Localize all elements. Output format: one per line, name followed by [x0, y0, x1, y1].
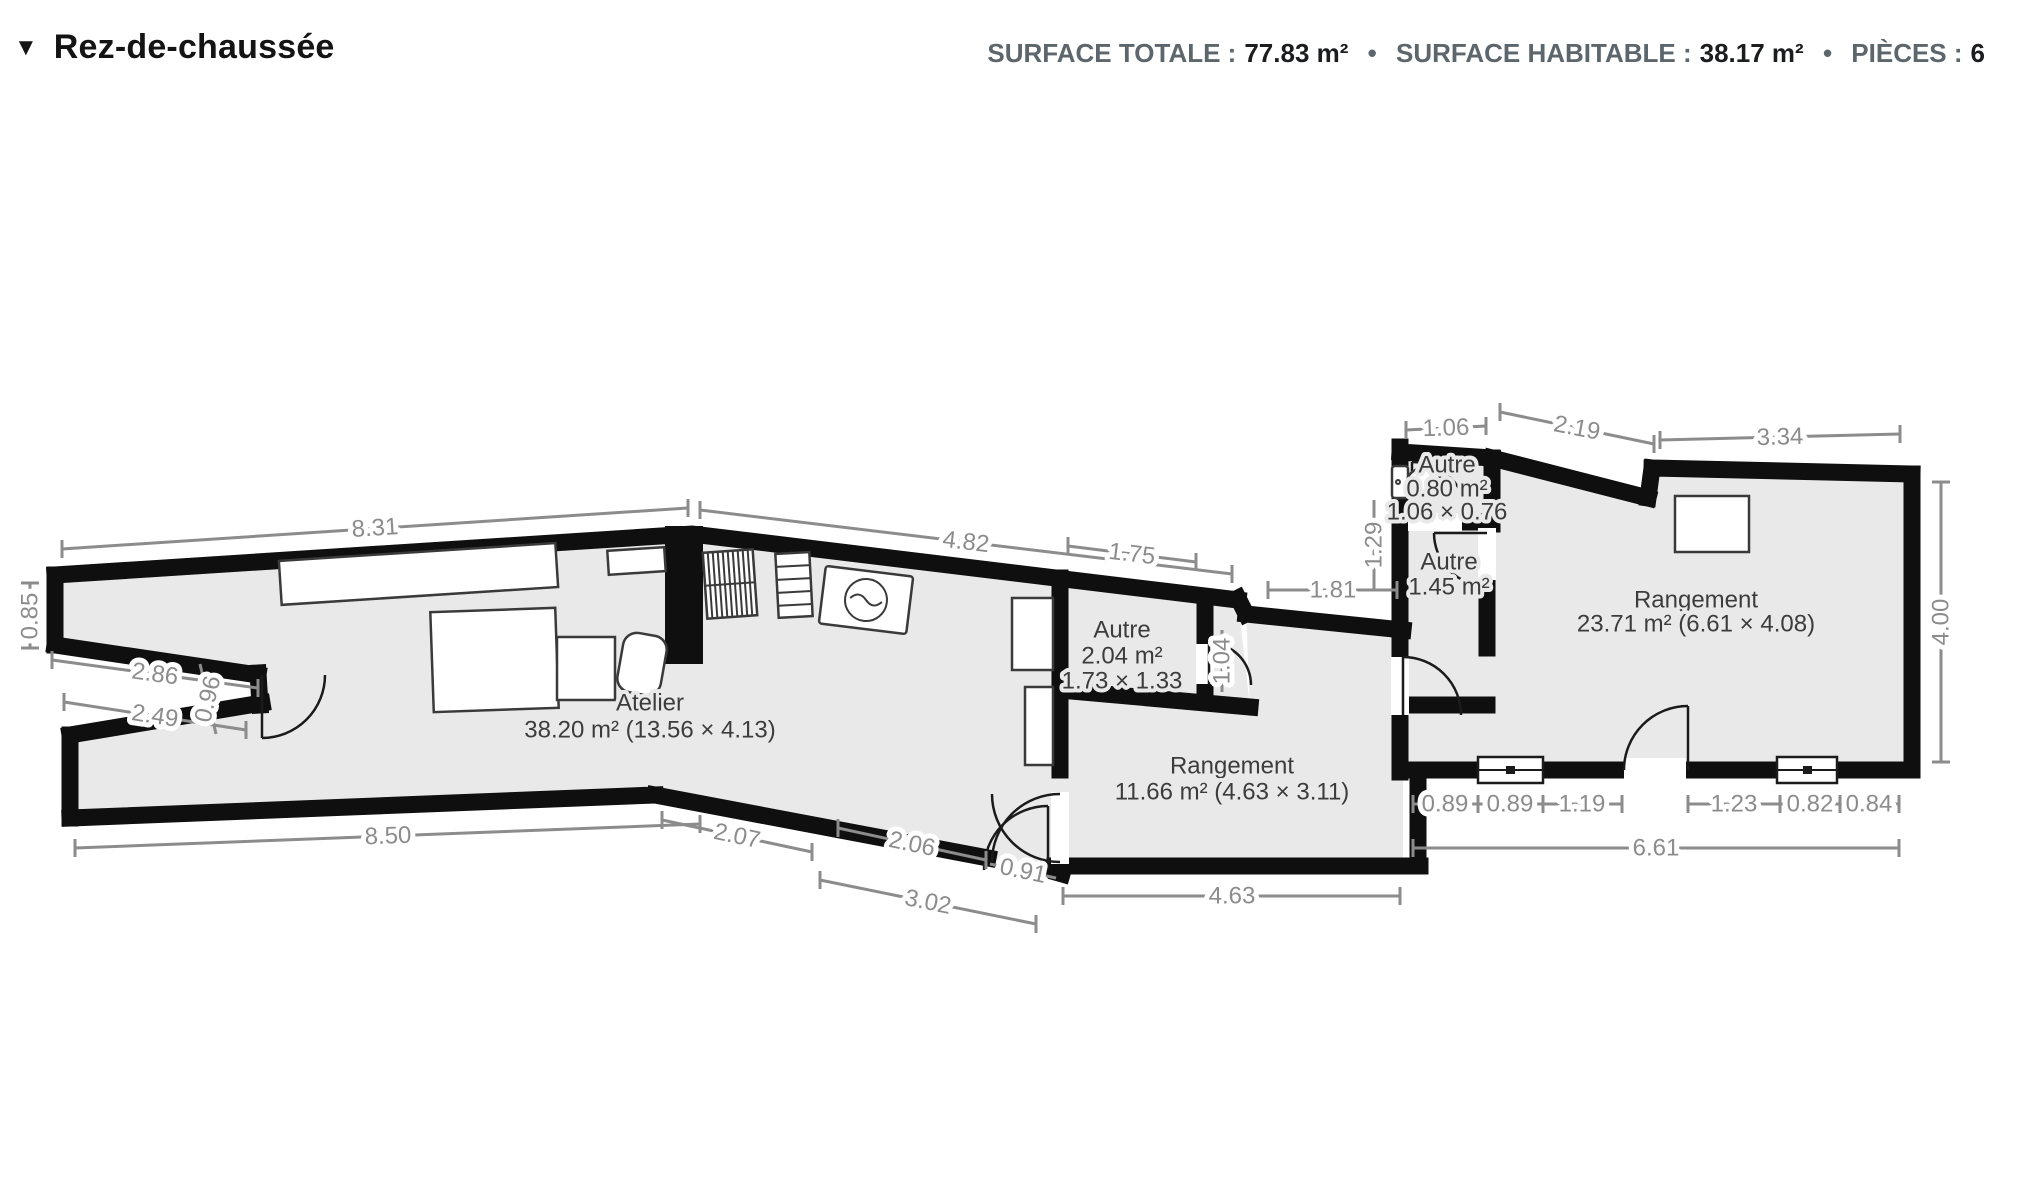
- window: [1777, 757, 1837, 783]
- dim-passage-top: 1.81: [1310, 577, 1357, 604]
- cabinet: [1025, 687, 1053, 765]
- dim-middle-top: 4.82: [941, 526, 991, 558]
- dim-bottom-right-total: 6.61: [1633, 835, 1680, 862]
- washing-machine-icon: [819, 566, 913, 634]
- stairs-icon: [775, 552, 812, 618]
- dim-br-5: 0.82: [1787, 791, 1834, 818]
- dim-br-1: 0.89: [1422, 791, 1469, 818]
- room-label-autre204: Autre: [1093, 617, 1150, 644]
- dim-wc-left: 1.29: [1361, 522, 1388, 569]
- dim-notch-upper: 2.86: [130, 657, 180, 690]
- room-label-autre204-dims: 1.73 × 1.33: [1062, 668, 1183, 695]
- dim-bottom-diag: 3.02: [902, 884, 953, 920]
- cabinet: [1012, 598, 1053, 670]
- dim-bottom-right-row: 0.89 0.89 1.19 1.23 0.82 0.84: [1413, 791, 1899, 818]
- window: [1478, 757, 1543, 783]
- dim-top-right: 3.34: [1756, 423, 1803, 451]
- room-label-autre204-area: 2.04 m²: [1081, 643, 1162, 670]
- chair: [615, 631, 669, 698]
- side-table: [557, 637, 615, 700]
- table: [430, 608, 558, 712]
- dim-br-3: 1.19: [1559, 791, 1606, 818]
- room-label-rangement-right-area: 23.71 m² (6.61 × 4.08): [1577, 611, 1815, 638]
- dim-top-diag: 2.19: [1551, 410, 1602, 445]
- room-label-rangement-right: Rangement: [1634, 587, 1758, 614]
- room-label-autre-wc: Autre: [1418, 452, 1475, 479]
- dim-br-2: 0.89: [1487, 791, 1534, 818]
- dim-left-upper: 0.85: [17, 593, 44, 640]
- storage-box: [1675, 496, 1749, 552]
- dim-atelier-bottom: 8.50: [364, 822, 412, 851]
- ladder-icon: [703, 549, 757, 618]
- dim-autre-door: 1.04: [1209, 638, 1236, 685]
- dim-wc-top: 1.06: [1422, 414, 1470, 443]
- room-label-rangement-mid-area: 11.66 m² (4.63 × 3.11): [1115, 779, 1350, 806]
- room-label-atelier: Atelier: [616, 690, 684, 717]
- dim-atelier-top: 8.31: [351, 513, 399, 543]
- room-label-autre-wc-dims: 1.06 × 0.76: [1387, 499, 1508, 526]
- dim-autre-top: 1.75: [1107, 538, 1157, 570]
- room-label-autre145-area: 1.45 m²: [1408, 574, 1489, 601]
- room-label-atelier-area: 38.20 m² (13.56 × 4.13): [524, 717, 775, 744]
- dim-right-side: 4.00: [1928, 599, 1955, 646]
- floorplan: 8.31 4.82 0.85 2.86 2.49 0.96 8.50 2.07 …: [0, 0, 2032, 1200]
- dim-br-6: 0.84: [1846, 791, 1893, 818]
- room-label-autre145: Autre: [1420, 549, 1477, 576]
- dim-br-4: 1.23: [1711, 791, 1758, 818]
- shelf: [607, 547, 665, 575]
- room-label-rangement-mid: Rangement: [1170, 753, 1294, 780]
- dim-bottom-step1: 2.07: [711, 818, 762, 854]
- dim-rangement-mid-bottom: 4.63: [1209, 883, 1256, 910]
